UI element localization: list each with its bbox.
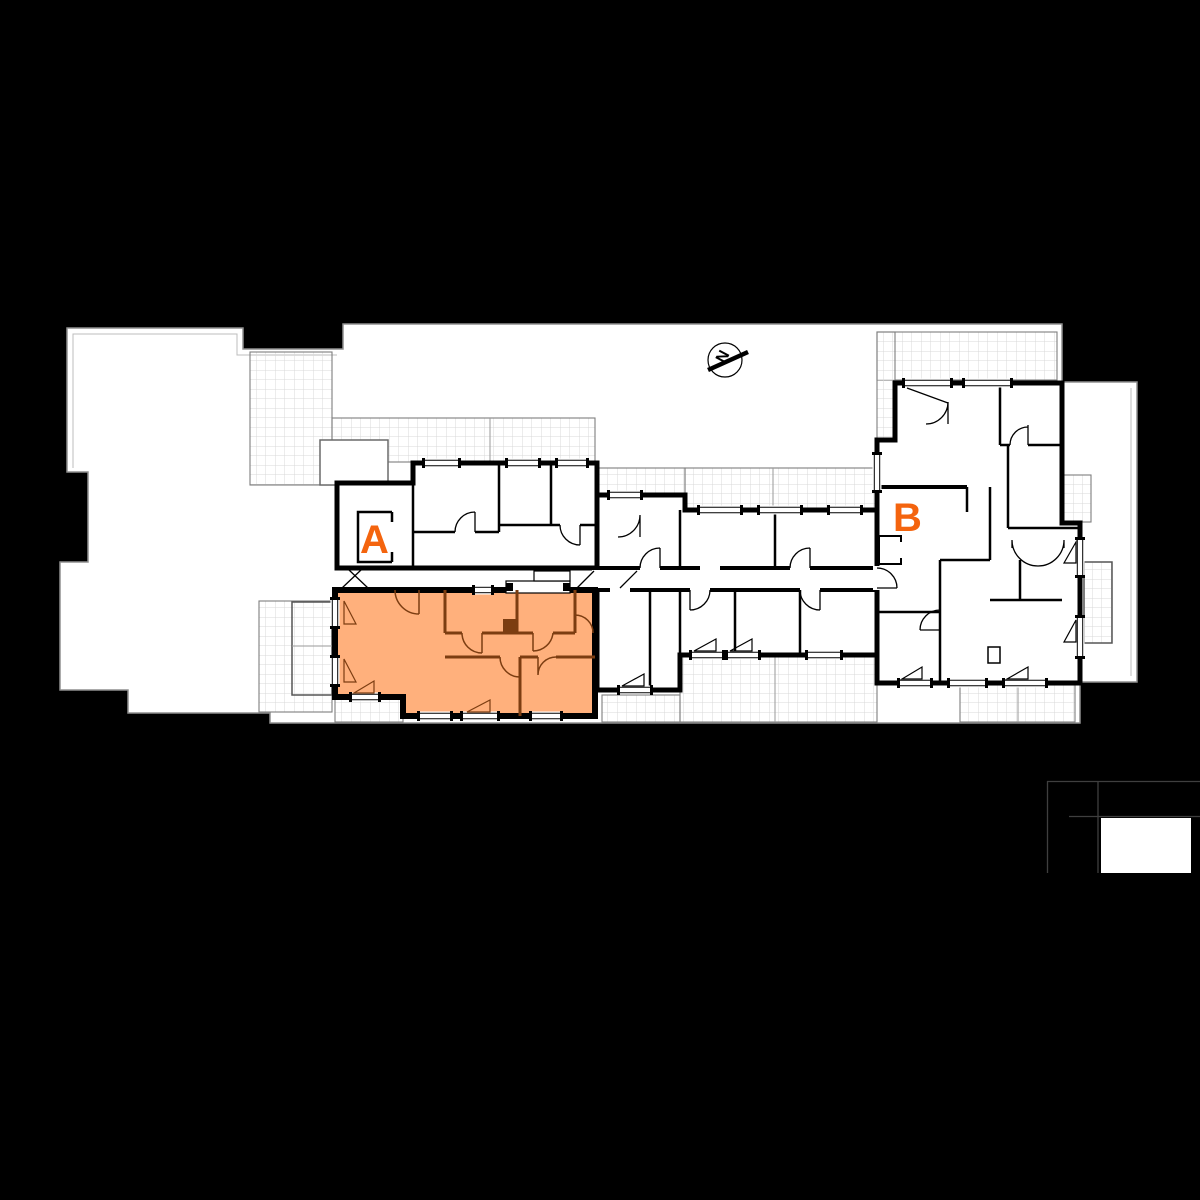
corridor-b-gap xyxy=(873,566,881,590)
unit-b-label: B xyxy=(893,496,922,540)
terrace-b-left-strip xyxy=(877,332,895,440)
terrace-bottom-mid-2 xyxy=(680,655,877,722)
brand-mark-block xyxy=(1101,818,1191,873)
building-b-block[interactable]: B xyxy=(873,383,1080,683)
roof-box xyxy=(320,440,388,485)
terrace-bottom-mid-1 xyxy=(602,695,680,722)
corridor-pass-gap xyxy=(592,570,602,588)
unit-a-duct xyxy=(503,619,516,632)
floorplan-canvas: B A xyxy=(0,0,1200,1200)
terrace-b-top xyxy=(877,332,1057,380)
unit-a-label: A xyxy=(360,518,389,562)
terrace-right-small xyxy=(1063,475,1091,522)
stair-core-b-gap xyxy=(899,542,903,558)
terrace-right-block xyxy=(1084,562,1112,643)
